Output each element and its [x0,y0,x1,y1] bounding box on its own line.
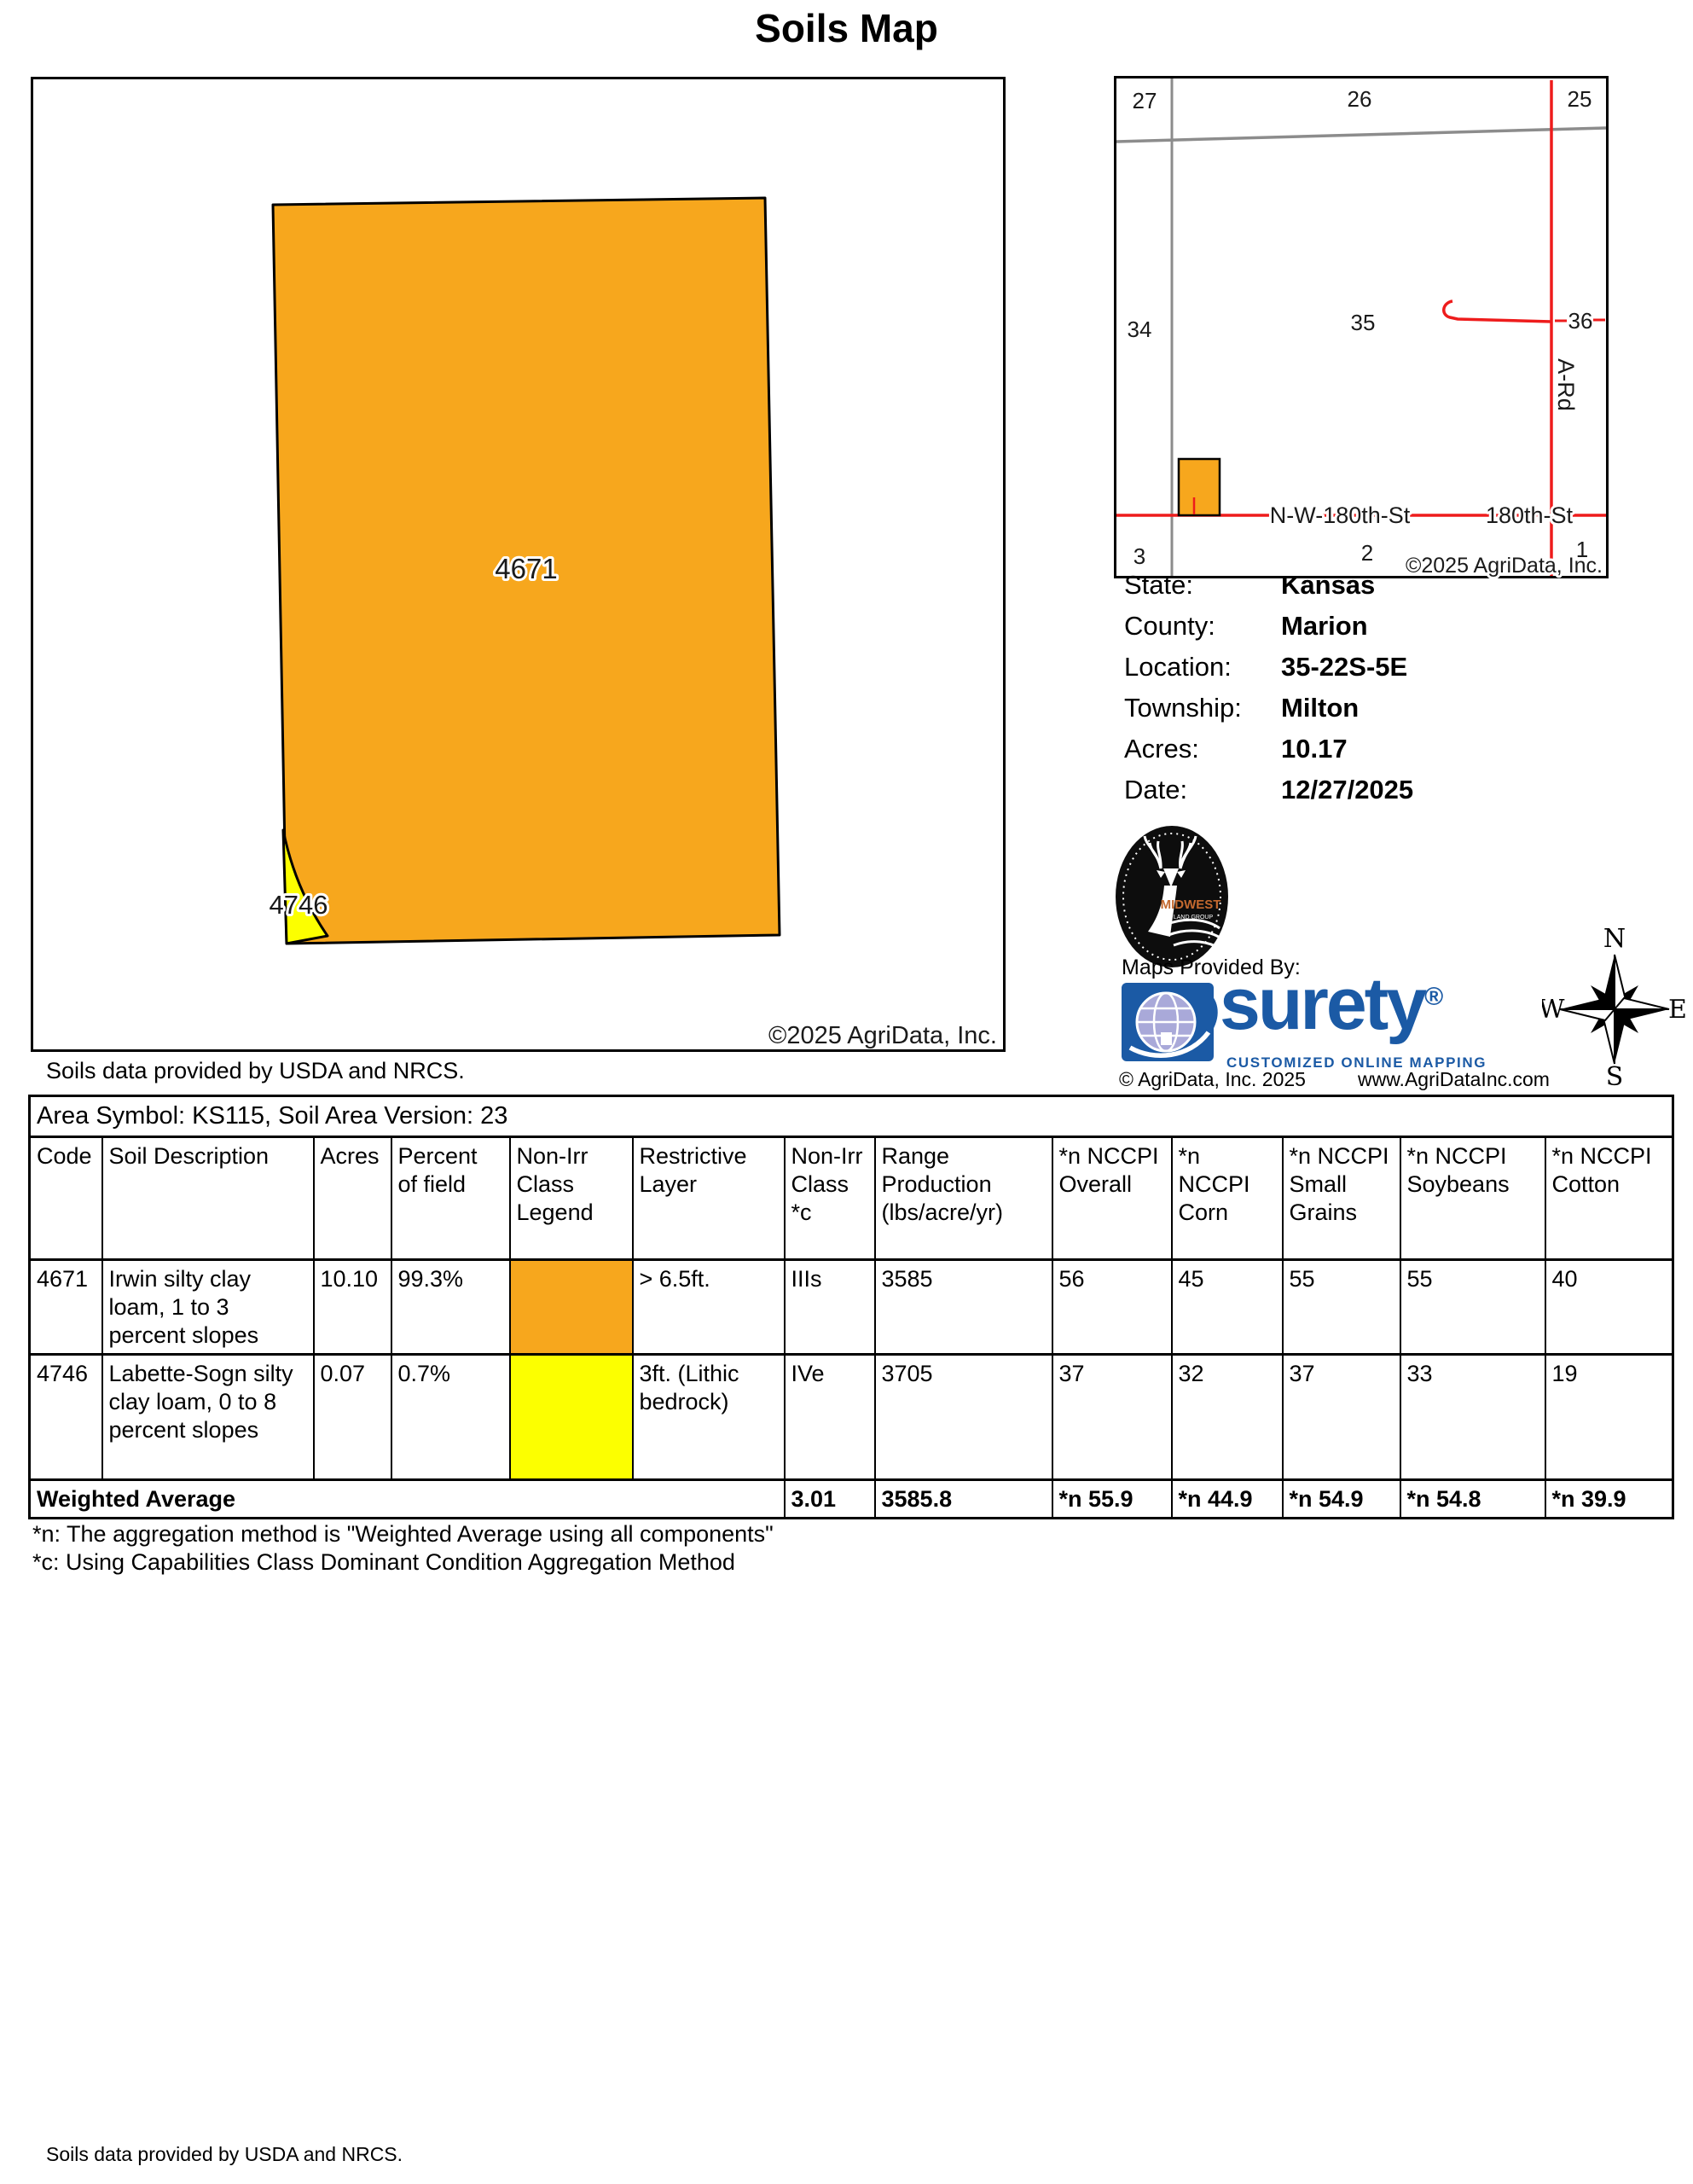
cell-range-production: 3705 [875,1354,1052,1479]
info-label: Acres: [1124,734,1281,764]
col-header-non-irr-class-legend: Non-Irr Class Legend [510,1137,633,1260]
info-label: Location: [1124,652,1281,682]
soil-label-4671: 4671 [495,553,557,584]
col-header-code: Code [30,1137,102,1260]
table-row: 4671 Irwin silty clay loam, 1 to 3 perce… [30,1260,1673,1355]
section-26: 26 [1348,86,1372,112]
cell-nccpi-small-grains: 37 [1283,1354,1400,1479]
legend-swatch-orange [510,1260,633,1355]
col-header-nccpi-cotton: *n NCCPI Cotton [1545,1137,1673,1260]
road-label-180th: 180th-St [1486,502,1574,528]
info-value: Milton [1281,693,1359,723]
col-header-percent-of-field: Percent of field [391,1137,510,1260]
col-header-range-production: Range Production (lbs/acre/yr) [875,1137,1052,1260]
weighted-range-production: 3585.8 [875,1479,1052,1518]
cell-nccpi-overall: 56 [1052,1260,1172,1355]
col-header-non-irr-class: Non-Irr Class *c [785,1137,875,1260]
compass-south-label: S [1606,1062,1624,1089]
cell-nccpi-small-grains: 55 [1283,1260,1400,1355]
surety-name: surety [1220,963,1424,1045]
table-footnotes: *n: The aggregation method is "Weighted … [32,1520,774,1577]
info-value: 12/27/2025 [1281,775,1413,804]
midwest-logo-text: MIDWEST [1161,897,1221,912]
info-label: Date: [1124,775,1281,805]
footnote-n: *n: The aggregation method is "Weighted … [32,1520,774,1548]
soils-data-note-top: Soils data provided by USDA and NRCS. [46,1058,465,1084]
info-value: Marion [1281,611,1368,641]
info-value: 10.17 [1281,734,1348,764]
cell-nccpi-corn: 45 [1172,1260,1283,1355]
cell-nccpi-overall: 37 [1052,1354,1172,1479]
weighted-average-label: Weighted Average [30,1479,785,1518]
registered-mark: ® [1424,983,1443,1011]
midwest-logo-subtext: LAND GROUP [1174,915,1214,921]
col-header-acres: Acres [314,1137,391,1260]
main-soils-map: 4671 4746 ©2025 AgriData, Inc. [31,77,1006,1052]
compass-cardinal-points [1560,955,1669,1064]
col-header-nccpi-overall: *n NCCPI Overall [1052,1137,1172,1260]
soils-map-report: Soils Map 4671 4746 ©2025 AgriData, Inc.… [0,0,1693,2184]
info-label: Township: [1124,693,1281,723]
col-header-soil-description: Soil Description [102,1137,314,1260]
info-label: State: [1124,570,1281,601]
agridata-copyright: © AgriData, Inc. 2025 [1119,1068,1306,1091]
compass-east-label: E [1668,995,1687,1025]
info-value: Kansas [1281,570,1375,600]
cell-description: Irwin silty clay loam, 1 to 3 percent sl… [102,1260,314,1355]
cell-nccpi-cotton: 19 [1545,1354,1673,1479]
weighted-non-irr-class: 3.01 [785,1479,875,1518]
col-header-nccpi-small-grains: *n NCCPI Small Grains [1283,1137,1400,1260]
legend-swatch-yellow [510,1354,633,1479]
field-location-marker[interactable] [1179,459,1220,515]
cell-acres: 0.07 [314,1354,391,1479]
cell-restrictive-layer: 3ft. (Lithic bedrock) [633,1354,785,1479]
weighted-nccpi-corn: *n 44.9 [1172,1479,1283,1518]
section-25: 25 [1568,86,1592,112]
cell-nccpi-soybeans: 55 [1400,1260,1545,1355]
cell-code: 4671 [30,1260,102,1355]
road-label-nw-180th: N-W-180th-St [1270,502,1411,528]
compass-rose: N S W E [1542,926,1687,1089]
footnote-c: *c: Using Capabilities Class Dominant Co… [32,1548,774,1577]
compass-north-label: N [1603,926,1626,954]
weighted-average-row: Weighted Average 3.01 3585.8 *n 55.9 *n … [30,1479,1673,1518]
section-3: 3 [1133,543,1145,569]
cell-range-production: 3585 [875,1260,1052,1355]
section-2: 2 [1361,540,1373,566]
cell-code: 4746 [30,1354,102,1479]
info-value: 35-22S-5E [1281,652,1407,682]
compass-west-label: W [1542,995,1565,1025]
midwest-land-group-logo: MIDWEST LAND GROUP [1114,824,1230,969]
info-row-township: Township:Milton [1124,693,1602,723]
info-row-location: Location:35-22S-5E [1124,652,1602,682]
soils-data-note-bottom: Soils data provided by USDA and NRCS. [46,2143,403,2166]
cell-non-irr-class: IVe [785,1354,875,1479]
table-row: 4746 Labette-Sogn silty clay loam, 0 to … [30,1354,1673,1479]
info-label: County: [1124,611,1281,642]
info-row-acres: Acres:10.17 [1124,734,1602,764]
section-36: 36 [1568,308,1593,334]
globe-highlight-square [1161,1032,1172,1045]
section-35: 35 [1351,310,1376,335]
info-row-state: State:Kansas [1124,570,1602,601]
info-row-date: Date:12/27/2025 [1124,775,1602,805]
road-label-a-rd: A-Rd [1553,358,1579,411]
col-header-nccpi-corn: *n NCCPI Corn [1172,1137,1283,1260]
weighted-nccpi-soybeans: *n 54.8 [1400,1479,1545,1518]
agridata-website[interactable]: www.AgriDataInc.com [1358,1068,1550,1091]
page-title: Soils Map [0,5,1693,51]
cell-percent: 99.3% [391,1260,510,1355]
table-header-row: Code Soil Description Acres Percent of f… [30,1137,1673,1260]
surety-logo-text: surety® [1220,967,1443,1041]
cell-nccpi-corn: 32 [1172,1354,1283,1479]
section-27: 27 [1133,88,1157,113]
soil-label-4746: 4746 [270,890,328,920]
col-header-restrictive-layer: Restrictive Layer [633,1137,785,1260]
cell-non-irr-class: IIIs [785,1260,875,1355]
area-symbol-line: Area Symbol: KS115, Soil Area Version: 2… [30,1096,1673,1137]
cell-percent: 0.7% [391,1354,510,1479]
map-copyright: ©2025 AgriData, Inc. [768,1022,997,1049]
cell-acres: 10.10 [314,1260,391,1355]
weighted-nccpi-overall: *n 55.9 [1052,1479,1172,1518]
cell-nccpi-cotton: 40 [1545,1260,1673,1355]
cell-restrictive-layer: > 6.5ft. [633,1260,785,1355]
weighted-nccpi-small-grains: *n 54.9 [1283,1479,1400,1518]
soil-table-section: Area Symbol: KS115, Soil Area Version: 2… [28,1095,1674,1519]
soil-table: Area Symbol: KS115, Soil Area Version: 2… [28,1095,1674,1519]
info-row-county: County:Marion [1124,611,1602,642]
section-34: 34 [1128,317,1152,342]
col-header-nccpi-soybeans: *n NCCPI Soybeans [1400,1137,1545,1260]
weighted-nccpi-cotton: *n 39.9 [1545,1479,1673,1518]
locator-map[interactable]: 27 26 25 34 35 36 3 2 1 N-W-180th-St 180… [1114,76,1609,578]
cell-description: Labette-Sogn silty clay loam, 0 to 8 per… [102,1354,314,1479]
cell-nccpi-soybeans: 33 [1400,1354,1545,1479]
